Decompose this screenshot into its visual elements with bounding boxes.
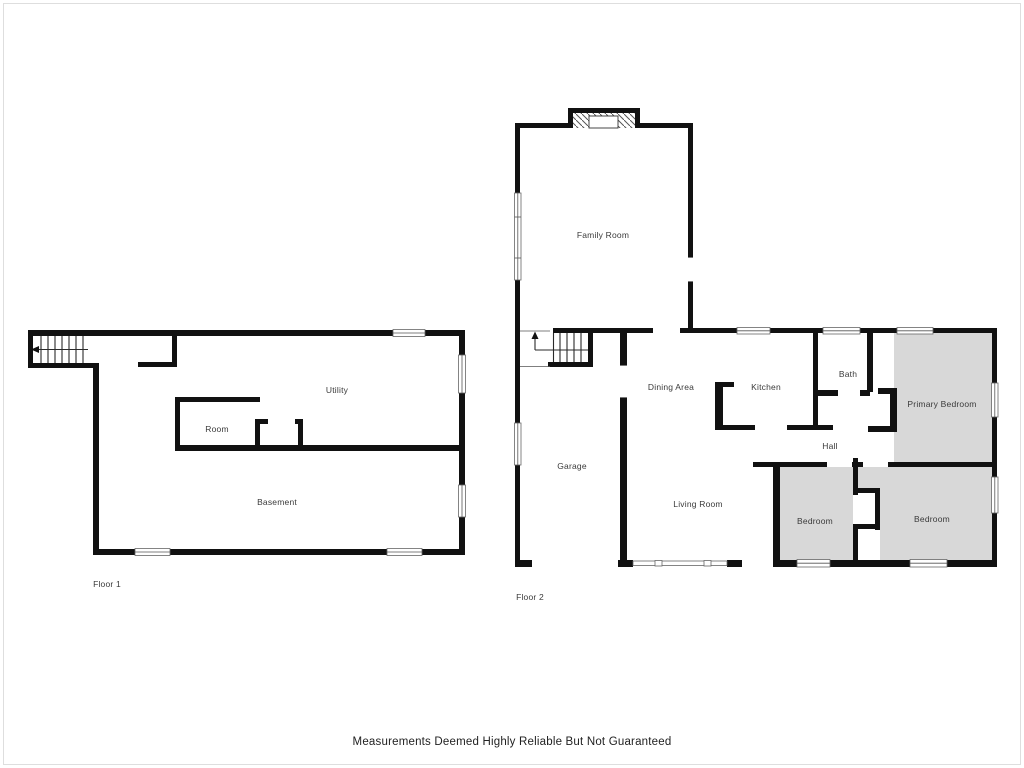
room-label: Primary Bedroom bbox=[907, 399, 976, 409]
floor-caption: Floor 1 bbox=[93, 579, 121, 589]
fireplace-box bbox=[589, 116, 618, 128]
room-label: Bath bbox=[839, 369, 857, 379]
room-label: Kitchen bbox=[751, 382, 781, 392]
room-label: Utility bbox=[326, 385, 348, 395]
floorplan-page: { "title": "Residential Floor Plan", "di… bbox=[0, 0, 1024, 768]
room-label: Bedroom bbox=[914, 514, 950, 524]
floor1-walls bbox=[28, 330, 465, 555]
floor-caption: Floor 2 bbox=[516, 592, 544, 602]
room-label: Bedroom bbox=[797, 516, 833, 526]
room-label: Family Room bbox=[577, 230, 629, 240]
floor1-stairs bbox=[31, 336, 88, 363]
floor2-stairs bbox=[520, 331, 588, 367]
room-label: Hall bbox=[822, 441, 837, 451]
room-label: Dining Area bbox=[648, 382, 694, 392]
room-label: Basement bbox=[257, 497, 297, 507]
disclaimer-text: Measurements Deemed Highly Reliable But … bbox=[353, 736, 672, 748]
stairs-up-arrow-icon bbox=[532, 332, 539, 340]
floor2-room-fills bbox=[780, 333, 992, 562]
room-label: Living Room bbox=[673, 499, 722, 509]
floorplan-drawing bbox=[0, 0, 1024, 768]
room-label: Room bbox=[205, 424, 228, 434]
room-label: Garage bbox=[557, 461, 587, 471]
